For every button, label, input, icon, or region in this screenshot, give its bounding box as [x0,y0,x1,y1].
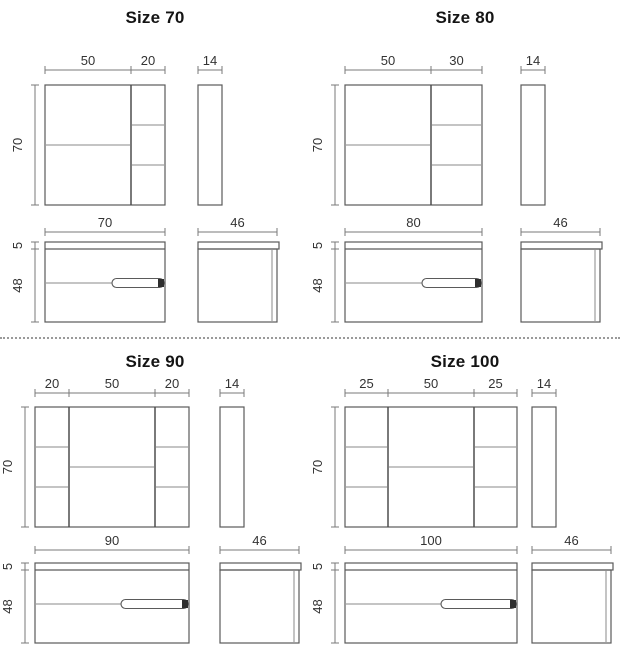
mirror-depth-dimension: 14 [198,53,222,74]
svg-text:20: 20 [141,53,155,68]
vanity-side-view [198,242,279,322]
svg-text:50: 50 [81,53,95,68]
vanity-height-dimension: 548 [310,242,339,322]
vanity-side-view [532,563,613,643]
svg-text:46: 46 [564,533,578,548]
svg-text:70: 70 [310,138,325,152]
svg-text:46: 46 [553,215,567,230]
vanity-height-dimension: 548 [10,242,39,322]
vanity-front-view [345,563,517,643]
drawer-handle [441,600,516,609]
vanity-height-dimension: 548 [0,563,29,643]
vanity-front-view [45,242,165,322]
svg-text:50: 50 [424,376,438,391]
svg-text:48: 48 [310,599,325,613]
vanity-depth-dimension: 46 [198,215,277,236]
panel-size-80: 503070148054846 [310,53,602,322]
mirror-width-dimension: 5030 [345,53,482,74]
vanity-depth-dimension: 46 [521,215,600,236]
mirror-front-view [345,85,482,205]
svg-text:20: 20 [165,376,179,391]
vanity-width-dimension: 70 [45,215,165,236]
svg-text:20: 20 [45,376,59,391]
svg-text:46: 46 [230,215,244,230]
svg-text:70: 70 [10,138,25,152]
svg-text:46: 46 [252,533,266,548]
svg-text:25: 25 [488,376,502,391]
mirror-depth-dimension: 14 [532,376,556,397]
panel-size-90: 20502070149054846 [0,376,301,643]
dotted-divider [0,337,620,339]
vanity-width-dimension: 80 [345,215,482,236]
svg-text:5: 5 [0,563,15,570]
panel-size-70: 502070147054846 [10,53,279,322]
svg-text:70: 70 [98,215,112,230]
svg-text:14: 14 [225,376,239,391]
mirror-side-view [521,85,545,205]
mirror-height-dimension: 70 [10,85,39,205]
mirror-depth-dimension: 14 [220,376,244,397]
vanity-side-view [521,242,602,322]
mirror-side-view [220,407,244,527]
svg-text:48: 48 [0,599,15,613]
svg-text:25: 25 [359,376,373,391]
vanity-width-dimension: 90 [35,533,189,554]
svg-text:14: 14 [203,53,217,68]
svg-text:5: 5 [310,563,325,570]
svg-text:5: 5 [10,242,25,249]
svg-text:48: 48 [310,278,325,292]
vanity-front-view [35,563,189,643]
vanity-front-view [345,242,482,322]
svg-text:14: 14 [526,53,540,68]
svg-text:70: 70 [0,460,15,474]
mirror-front-view [35,407,189,527]
mirror-height-dimension: 70 [310,407,339,527]
drawer-handle [422,279,481,288]
mirror-width-dimension: 5020 [45,53,165,74]
vanity-height-dimension: 548 [310,563,339,643]
vanity-width-dimension: 100 [345,533,517,554]
mirror-depth-dimension: 14 [521,53,545,74]
svg-text:90: 90 [105,533,119,548]
svg-text:80: 80 [406,215,420,230]
vanity-side-view [220,563,301,643]
mirror-height-dimension: 70 [310,85,339,205]
mirror-front-view [345,407,517,527]
svg-text:14: 14 [537,376,551,391]
svg-text:48: 48 [10,278,25,292]
svg-text:50: 50 [105,376,119,391]
svg-text:5: 5 [310,242,325,249]
drawer-handle [121,600,188,609]
svg-text:70: 70 [310,460,325,474]
mirror-width-dimension: 255025 [345,376,517,397]
mirror-side-view [198,85,222,205]
vanity-depth-dimension: 46 [532,533,611,554]
panel-size-100: 255025701410054846 [310,376,613,643]
svg-text:50: 50 [381,53,395,68]
mirror-height-dimension: 70 [0,407,29,527]
svg-text:30: 30 [449,53,463,68]
mirror-front-view [45,85,165,205]
mirror-width-dimension: 205020 [35,376,189,397]
vanity-depth-dimension: 46 [220,533,299,554]
drawer-handle [112,279,164,288]
dimension-drawing: 5020701470548465030701480548462050207014… [0,0,620,651]
svg-text:100: 100 [420,533,442,548]
mirror-side-view [532,407,556,527]
